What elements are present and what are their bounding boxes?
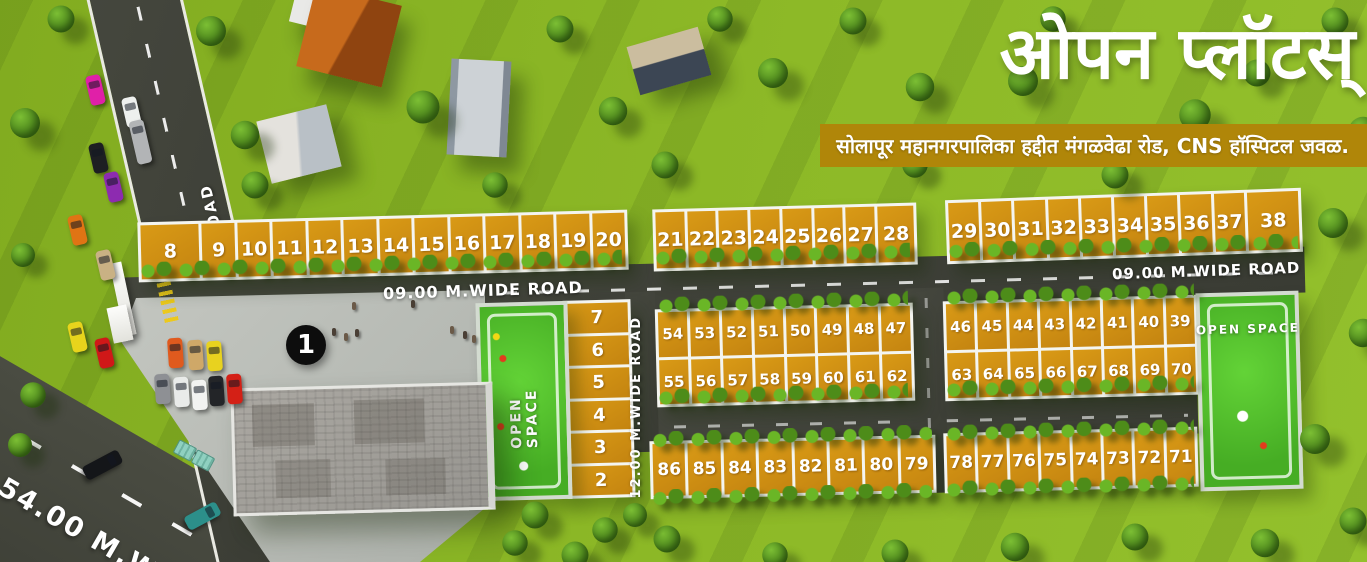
building-1-roof [230,382,495,517]
car [94,337,115,370]
page-title: ओपन प्लॉटस् [1000,14,1355,93]
tree [1251,529,1280,558]
tree [48,6,75,33]
plot-cell[interactable]: 51 [753,309,783,354]
car [103,171,124,204]
plot-cell[interactable]: 4 [568,400,631,431]
plot-cell[interactable]: 45 [977,303,1007,349]
tree [1122,524,1149,551]
tree [10,108,40,138]
person [352,302,356,310]
flat-roof-building [627,27,712,95]
tree [407,91,440,124]
plot-cell[interactable]: 48 [849,307,879,352]
gray-barn [447,58,512,157]
tree [11,243,35,267]
person [332,328,336,336]
plot-cell[interactable]: 7 [565,302,628,333]
tree [652,152,679,179]
car [206,341,223,372]
car [173,377,190,408]
car [226,374,243,405]
plot-cell[interactable]: 42 [1071,300,1101,346]
person [355,329,359,337]
road-54m-label: 54.00 M.W [0,472,164,562]
car [67,321,88,354]
tree [762,542,788,562]
tree [906,73,935,102]
open-space-left-label: OPEN SPACE [507,353,541,449]
tree [1300,424,1330,454]
plot-cell[interactable]: 41 [1103,299,1133,345]
car [67,214,88,247]
tree [562,542,589,562]
plot-column-7-2: 765432 [562,299,635,499]
tree [882,540,909,562]
car [208,376,225,407]
open-space-right-label: OPEN SPACE [1196,321,1300,338]
tree [623,503,647,527]
open-space-right: OPEN SPACE [1195,291,1303,492]
plot-cell[interactable]: 46 [946,304,976,350]
person [450,326,454,334]
tree [547,16,574,43]
plot-cell[interactable]: 39 [1165,298,1195,344]
plot-cell[interactable]: 44 [1009,302,1039,348]
tree [1318,208,1348,238]
white-shed [256,104,341,184]
plot-cell[interactable]: 54 [658,312,688,357]
person [463,331,467,339]
tree [840,8,867,35]
person [472,335,476,343]
plot-cell[interactable]: 3 [569,432,632,463]
car [167,338,184,369]
tree [20,382,46,408]
orange-roof-house [296,0,402,87]
tree [758,58,788,88]
tree [1340,508,1367,535]
tree [592,517,618,543]
person [344,333,348,341]
plot-cell[interactable]: 5 [567,367,630,398]
tree [522,502,549,529]
tree [1349,319,1367,348]
tree [599,97,628,126]
car [187,340,204,371]
car [85,74,106,107]
subtitle-band: सोलापूर महानगरपालिका हद्दीत मंगळवेढा रोड… [820,124,1367,167]
car [154,374,171,405]
site-marker-1[interactable]: 1 [286,325,326,365]
road-12m-label: 12.00 M.WIDE ROAD [629,316,644,498]
plot-cell[interactable]: 43 [1040,301,1070,347]
tree [1001,533,1030,562]
plot-cell[interactable]: 6 [566,335,629,366]
car [88,142,109,175]
tree [502,530,528,556]
tree [242,172,269,199]
tree [196,16,226,46]
tree [231,121,260,150]
tree [482,172,508,198]
plot-cell[interactable]: 53 [690,311,720,356]
tree [707,6,733,32]
plot-cell[interactable]: 47 [881,306,911,351]
plot-cell[interactable]: 49 [817,307,847,352]
plot-cell[interactable]: 40 [1134,299,1164,345]
tree [8,433,32,457]
site-plan: 54.00 M.W EXSTING ROAD 09.00 M.WIDE ROAD… [0,0,1367,562]
plot-cell[interactable]: 50 [785,308,815,353]
car [191,380,208,411]
plot-cell[interactable]: 52 [722,310,752,355]
tree [654,526,681,553]
car [95,249,116,282]
plot-cell[interactable]: 2 [570,465,633,496]
